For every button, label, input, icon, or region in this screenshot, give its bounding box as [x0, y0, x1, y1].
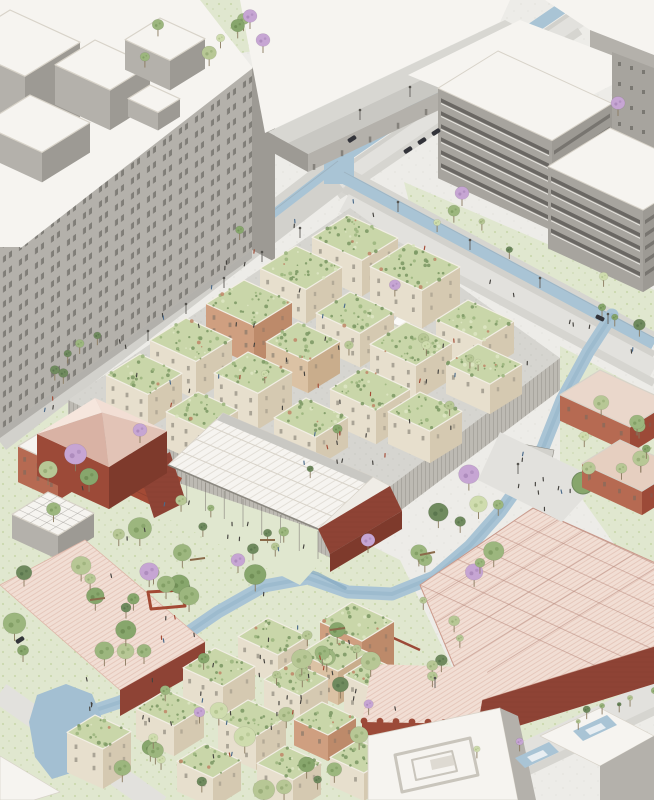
tree-foliage: [450, 403, 452, 405]
person: [44, 408, 45, 411]
window: [185, 774, 188, 779]
tree-canopy: [448, 205, 460, 216]
roof-plant: [278, 762, 281, 765]
roof-plant: [337, 233, 340, 236]
roof-plant: [362, 756, 365, 759]
roof-plant: [327, 640, 329, 642]
roof-plant: [319, 237, 322, 240]
roof-plant: [132, 384, 136, 388]
window: [308, 442, 311, 447]
roof-plant: [100, 719, 102, 721]
roof-plant: [183, 761, 185, 763]
roof-plant: [151, 381, 155, 385]
roof-plant: [355, 230, 358, 233]
roof-plant: [461, 322, 463, 324]
tree-pine: [121, 603, 131, 612]
tree-foliage: [458, 638, 460, 640]
context-window: [642, 90, 645, 94]
roof-plant: [149, 709, 151, 711]
person: [170, 381, 171, 384]
tree-foliage: [470, 470, 474, 474]
window: [220, 397, 223, 402]
roof-plant: [408, 405, 410, 407]
roof-plant: [108, 726, 111, 729]
person: [561, 490, 562, 493]
roof-plant: [367, 627, 369, 629]
tree-flowering: [64, 444, 86, 465]
roof-plant: [410, 336, 414, 340]
tree-foliage: [70, 453, 75, 458]
roof-plant: [416, 407, 418, 409]
window: [230, 689, 232, 693]
roof-plant: [221, 683, 223, 685]
roof-plant: [228, 288, 230, 290]
tree-foliage: [90, 473, 93, 476]
roof-plant: [90, 724, 92, 726]
roof-plant: [384, 268, 387, 271]
tree-canopy: [179, 587, 199, 605]
roof-plant: [199, 336, 203, 340]
tree-canopy: [276, 780, 291, 794]
roof-plant: [353, 748, 356, 751]
roof-plant: [127, 365, 129, 367]
roof-plant: [286, 766, 288, 768]
roof-plant: [297, 251, 299, 253]
tree-canopy: [475, 359, 481, 365]
person: [231, 752, 232, 755]
window: [585, 415, 588, 420]
tree-foliage: [469, 571, 473, 575]
tree-foliage: [642, 455, 645, 458]
tree-pine: [307, 466, 314, 472]
tree-canopy: [479, 218, 485, 224]
roof-plant: [460, 359, 462, 361]
roof-plant: [203, 422, 206, 425]
person: [325, 337, 326, 340]
tree-canopy: [629, 415, 644, 429]
window: [272, 353, 275, 358]
roof-plant: [431, 342, 434, 345]
roof-plant: [406, 353, 408, 355]
roof-plant: [253, 316, 255, 318]
window: [50, 482, 53, 487]
tree-pine: [16, 565, 32, 579]
window: [367, 428, 370, 433]
roof-plant: [265, 620, 268, 623]
tree-foliage: [141, 524, 145, 528]
window: [262, 341, 264, 345]
roof-plant: [431, 353, 434, 356]
roof-plant: [305, 332, 309, 336]
roof-plant: [149, 385, 151, 387]
street-lamp-head: [147, 330, 150, 333]
window: [383, 413, 385, 417]
roof-plant: [344, 309, 347, 312]
roof-plant: [371, 315, 375, 319]
tree-foliage: [299, 674, 302, 677]
station-opening: [369, 137, 372, 143]
tree-foliage: [396, 283, 398, 285]
roof-plant: [335, 300, 338, 303]
window: [367, 336, 369, 340]
person: [327, 445, 328, 448]
roof-plant: [374, 408, 376, 410]
roof-plant: [120, 726, 123, 729]
tree-foliage: [308, 633, 310, 635]
roof-plant: [262, 360, 266, 364]
tree-foliage: [424, 599, 426, 601]
tree-canopy: [235, 226, 243, 234]
roof-plant: [309, 357, 311, 359]
roof-plant: [221, 678, 223, 680]
tree-foliage: [68, 352, 70, 354]
tree-foliage: [455, 619, 457, 621]
roof-plant: [286, 350, 288, 352]
roof-plant: [250, 372, 253, 375]
roof-plant: [259, 292, 262, 295]
roof-plant: [458, 308, 460, 310]
roof-plant: [414, 285, 416, 287]
roof-plant: [360, 326, 364, 330]
window: [407, 383, 410, 388]
roof-plant: [222, 402, 226, 406]
roof-plant: [362, 635, 366, 639]
roof-plant: [303, 338, 307, 342]
tree-foliage: [250, 574, 255, 579]
tree-foliage: [268, 531, 270, 533]
roof-plant: [214, 677, 216, 679]
roof-plant: [160, 695, 162, 697]
tree-foliage: [303, 655, 307, 659]
roof-plant: [363, 310, 366, 313]
roof-plant: [283, 627, 285, 629]
window: [282, 399, 284, 403]
person: [189, 389, 190, 392]
window: [513, 377, 515, 381]
tree-foliage: [55, 368, 57, 370]
station-opening: [397, 123, 400, 129]
tree-foliage: [155, 24, 158, 27]
roof-plant: [437, 319, 440, 322]
tree-foliage: [84, 476, 88, 480]
roof-plant: [328, 637, 330, 639]
tree-foliage: [460, 637, 462, 639]
roof-plant: [247, 305, 249, 307]
roof-plant: [299, 400, 303, 404]
window: [458, 338, 461, 343]
roof-plant: [260, 646, 262, 648]
tree-canopy: [157, 576, 175, 593]
roof-plant: [340, 315, 342, 317]
tree-foliage: [106, 647, 109, 650]
tree-canopy: [137, 644, 151, 657]
roof-plant: [374, 249, 378, 253]
tree-foliage: [392, 285, 394, 287]
tree-foliage: [127, 606, 129, 608]
roof-plant: [254, 723, 256, 725]
tree-foliage: [637, 458, 641, 462]
tree-canopy: [127, 593, 139, 604]
tree-flowering: [516, 738, 524, 745]
roof-plant: [381, 404, 384, 407]
roof-plant: [254, 627, 257, 630]
window: [376, 356, 379, 361]
tree-foliage: [424, 336, 426, 338]
roof-plant: [112, 373, 116, 377]
roof-plant: [262, 378, 265, 381]
roof-plant: [187, 403, 190, 406]
roof-plant: [135, 378, 138, 381]
person: [300, 700, 301, 703]
roof-plant: [410, 264, 412, 266]
masterplan-illustration: [0, 0, 654, 800]
tree-foliage: [182, 498, 184, 500]
roof-plant: [388, 255, 391, 258]
tree-foliage: [585, 709, 587, 711]
roof-plant: [437, 278, 441, 282]
tree-canopy: [315, 646, 330, 660]
tree-foliage: [633, 421, 636, 424]
roof-plant: [154, 388, 156, 390]
tree-foliage: [199, 781, 201, 783]
tree-foliage: [597, 402, 600, 405]
tree-foliage: [209, 507, 211, 509]
tree-pine: [428, 503, 448, 521]
window: [172, 387, 174, 391]
tree-foliage: [458, 193, 461, 196]
roof-plant: [314, 423, 318, 427]
roof-plant: [163, 364, 166, 367]
window: [369, 644, 371, 648]
window: [257, 654, 260, 659]
tree-foliage: [273, 546, 275, 548]
tree-foliage: [433, 511, 437, 515]
window: [180, 729, 182, 733]
tree-foliage: [349, 343, 351, 345]
roof-plant: [496, 355, 500, 359]
window: [187, 379, 190, 384]
tree-foliage: [615, 316, 617, 318]
tree-foliage: [602, 306, 604, 308]
tree-foliage: [234, 560, 237, 563]
roof-plant: [230, 660, 234, 664]
person: [490, 280, 491, 283]
person: [342, 459, 343, 462]
tree-foliage: [613, 317, 615, 319]
person: [189, 501, 190, 504]
tree-foliage: [647, 447, 649, 449]
roof-plant: [224, 752, 227, 755]
window: [497, 387, 499, 391]
roof-plant: [495, 323, 498, 326]
tree-foliage: [151, 750, 155, 754]
roof-plant: [496, 320, 499, 323]
roof-plant: [408, 345, 412, 349]
window: [306, 700, 308, 704]
roof-plant: [393, 267, 396, 270]
tree-canopy: [593, 395, 609, 409]
roof-plant: [401, 261, 405, 265]
station-opening: [313, 164, 316, 170]
tree-foliage: [237, 229, 239, 231]
roof-plant: [328, 427, 330, 429]
roof-plant: [427, 264, 431, 268]
station-opening: [425, 109, 428, 115]
roof-plant: [222, 375, 224, 377]
window: [171, 423, 174, 428]
roof-plant: [296, 690, 298, 692]
tree-canopy: [445, 401, 454, 410]
street-lamp-head: [223, 277, 226, 280]
window: [442, 370, 444, 374]
tree-foliage: [587, 708, 589, 710]
roof-plant: [291, 672, 295, 676]
roof-plant: [282, 301, 286, 305]
roof-plant: [380, 307, 383, 310]
roof-plant: [365, 679, 369, 683]
roof-plant: [284, 274, 286, 276]
tree-foliage: [435, 222, 437, 224]
roof-plant: [166, 703, 169, 706]
roof-plant: [234, 301, 237, 304]
roof-plant: [401, 355, 403, 357]
window: [367, 349, 369, 353]
roof-plant: [358, 318, 360, 320]
roof-plant: [419, 285, 423, 289]
roof-plant: [197, 341, 201, 345]
tree-foliage: [119, 532, 121, 534]
window: [323, 440, 325, 444]
tree-foliage: [64, 371, 66, 373]
roof-plant: [498, 375, 500, 377]
tree-foliage: [507, 249, 509, 251]
tree-foliage: [16, 619, 20, 623]
roof-plant: [341, 754, 344, 757]
tree-foliage: [622, 466, 624, 468]
person: [91, 703, 92, 706]
window: [319, 249, 322, 254]
roof-plant: [174, 323, 177, 326]
roof-plant: [238, 759, 240, 761]
tree-pine: [455, 516, 466, 526]
context-window: [642, 70, 645, 74]
tree-foliage: [482, 220, 484, 222]
roof-plant: [475, 306, 477, 308]
roof-plant: [325, 268, 328, 271]
roof-plant: [418, 396, 420, 398]
person: [558, 486, 559, 489]
roof-plant: [201, 346, 203, 348]
roof-plant: [370, 225, 373, 228]
window: [220, 384, 223, 389]
roof-plant: [177, 699, 180, 702]
roof-plant: [375, 372, 377, 374]
roof-plant: [359, 388, 362, 391]
tree-foliage: [285, 784, 288, 787]
person: [143, 716, 144, 719]
window: [314, 292, 316, 296]
window: [284, 658, 286, 662]
roof-plant: [284, 666, 288, 670]
roof-plant: [204, 395, 208, 399]
tree-foliage: [335, 428, 337, 430]
tree-foliage: [369, 702, 371, 704]
roof-plant: [286, 747, 289, 750]
roof-plant: [194, 393, 198, 397]
tree-foliage: [287, 711, 290, 714]
roof-plant: [398, 254, 401, 257]
roof-plant: [266, 628, 268, 630]
roof-plant: [215, 337, 219, 341]
roof-plant: [351, 632, 354, 635]
tree-foliage: [180, 580, 184, 584]
roof-plant: [442, 272, 445, 275]
context-window: [642, 130, 645, 134]
window: [281, 316, 283, 320]
context-window: [642, 110, 645, 114]
roof-plant: [200, 358, 202, 360]
roof-plant: [109, 743, 112, 746]
tree-pine: [50, 366, 59, 375]
roof-plant: [437, 344, 441, 348]
tree-canopy: [253, 780, 275, 800]
roof-plant: [367, 312, 369, 314]
roof-plant: [160, 336, 163, 339]
roof-plant: [449, 319, 451, 321]
roof-plant: [257, 732, 260, 735]
roof-plant: [367, 315, 370, 318]
tree-foliage: [281, 531, 283, 533]
tree-foliage: [130, 598, 133, 601]
roof-plant: [280, 758, 284, 762]
window: [112, 399, 115, 404]
roof-plant: [232, 361, 236, 365]
window: [265, 776, 268, 781]
roof-plant: [356, 370, 360, 374]
roof-plant: [341, 719, 343, 721]
roof-plant: [193, 704, 196, 707]
roof-plant: [272, 297, 274, 299]
roof-plant: [299, 355, 302, 358]
tree-foliage: [354, 648, 356, 650]
window: [384, 326, 386, 330]
tree-foliage: [123, 607, 125, 609]
roof-plant: [296, 416, 299, 419]
window: [155, 410, 157, 414]
tree-foliage: [496, 504, 498, 506]
roof-plant: [284, 251, 288, 255]
roof-plant: [412, 244, 415, 247]
tree-foliage: [360, 731, 363, 734]
roof-plant: [265, 623, 269, 627]
roof-plant: [285, 673, 287, 675]
roof-plant: [289, 680, 293, 684]
tree-foliage: [510, 248, 512, 250]
tree-foliage: [203, 525, 205, 527]
tree-foliage: [372, 657, 376, 661]
tree-foliage: [202, 780, 204, 782]
tree-foliage: [197, 712, 199, 714]
roof-plant: [301, 718, 304, 721]
roof-plant: [343, 653, 347, 657]
tree-flowering: [256, 34, 270, 47]
roof-plant: [240, 661, 243, 664]
roof-plant: [372, 404, 375, 407]
tree-canopy: [352, 645, 361, 653]
tree-canopy: [75, 339, 84, 347]
roof-plant: [501, 374, 504, 377]
window: [367, 415, 370, 420]
